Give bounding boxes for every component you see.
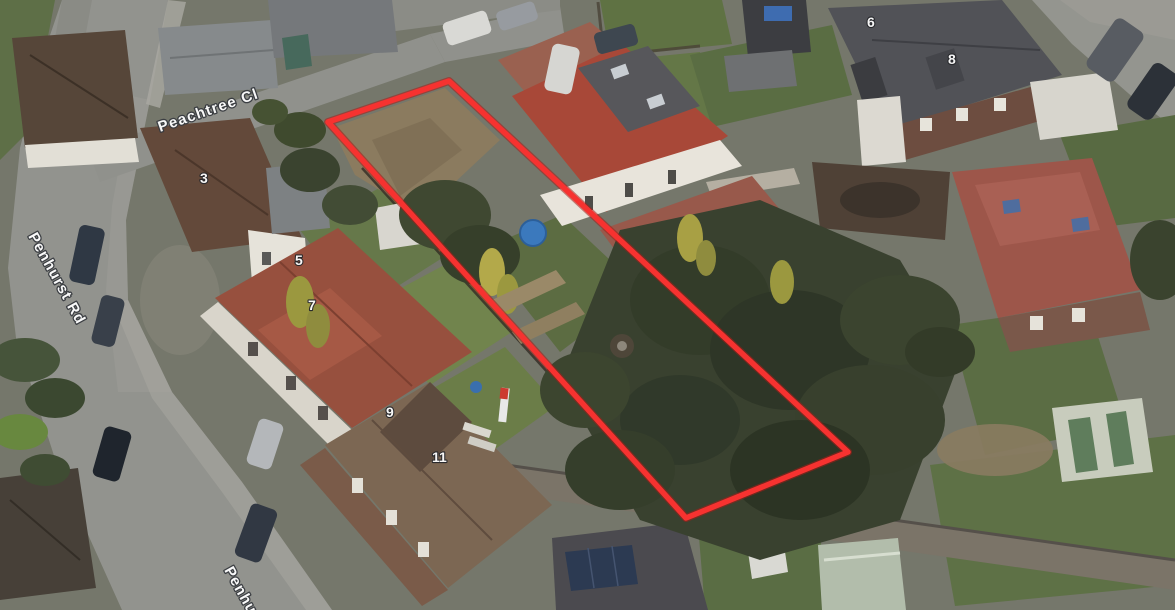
house-number-8: 8 [948, 51, 956, 67]
map-viewport[interactable]: Peachtree Cl Penhurst Rd Penhurst Rd 3 5… [0, 0, 1175, 610]
house-number-5: 5 [295, 252, 303, 268]
house-number-3: 3 [200, 170, 208, 186]
house-number-11: 11 [432, 449, 447, 465]
house-number-7: 7 [308, 297, 316, 313]
house-number-9: 9 [386, 404, 394, 420]
house-number-6: 6 [867, 14, 875, 30]
aerial-imagery: Peachtree Cl Penhurst Rd Penhurst Rd 3 5… [0, 0, 1175, 610]
